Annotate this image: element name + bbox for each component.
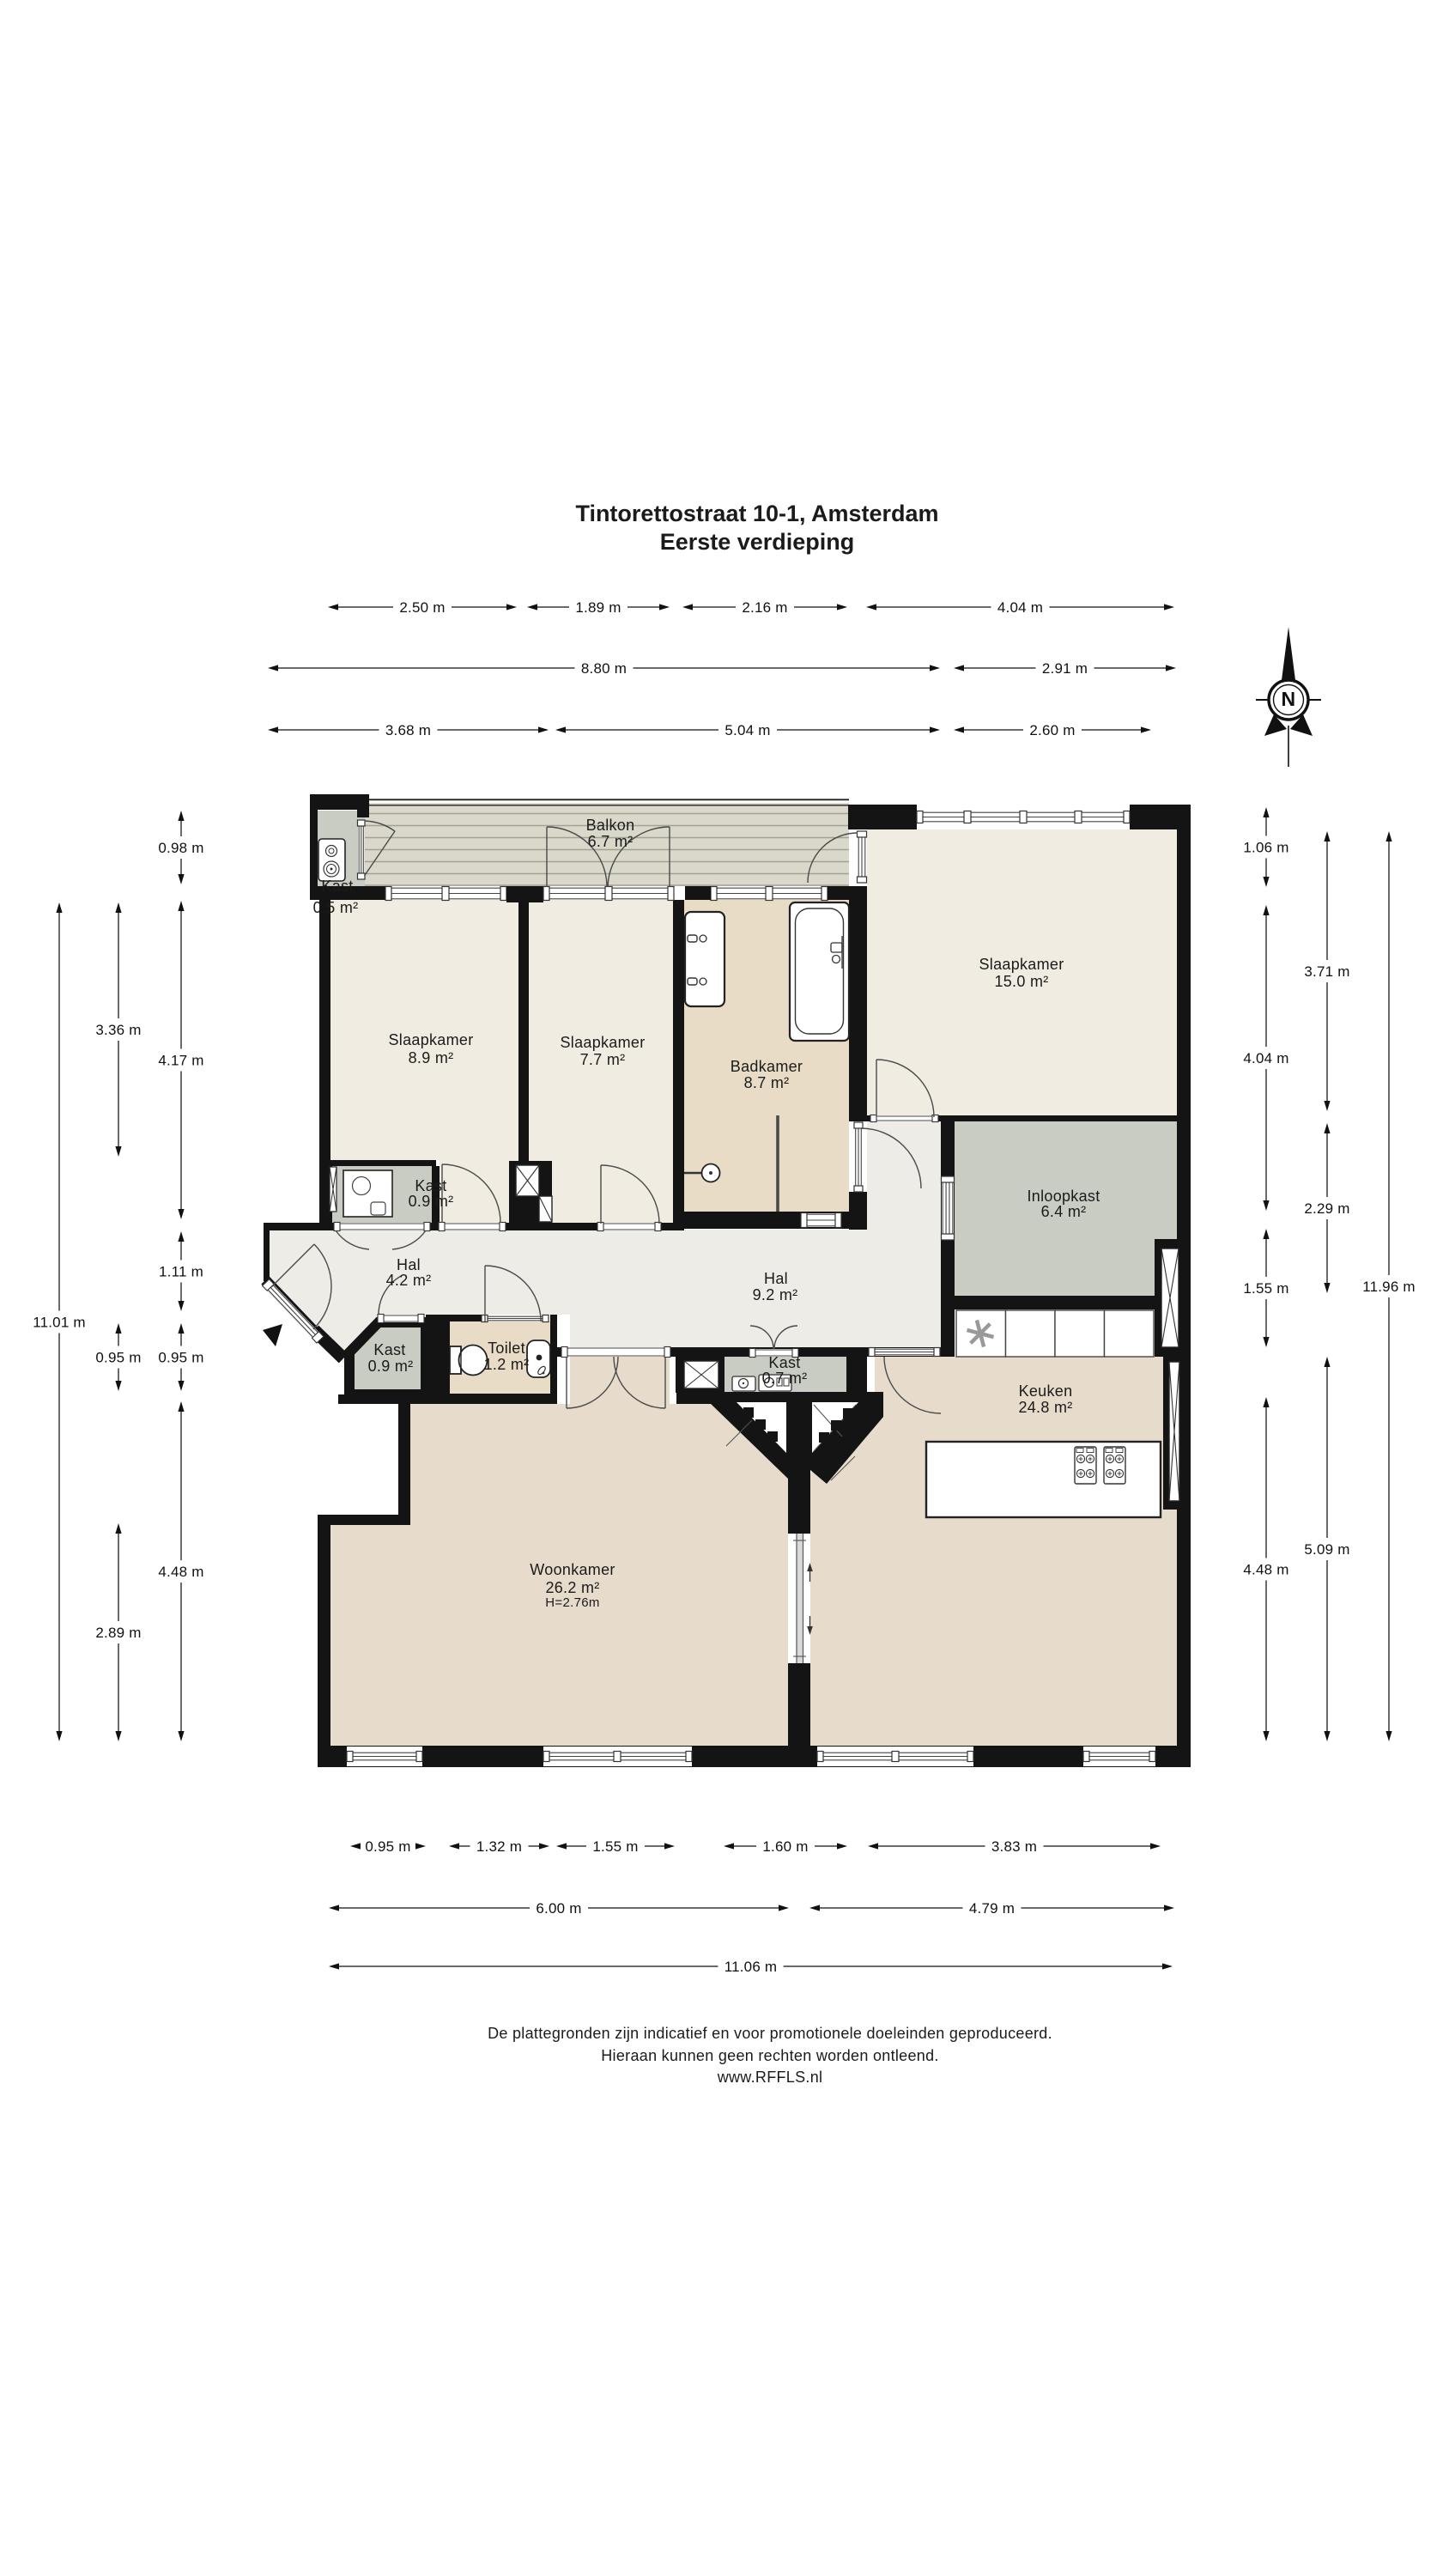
svg-text:www.RFFLS.nl: www.RFFLS.nl	[717, 2069, 823, 2086]
svg-text:0.95 m: 0.95 m	[95, 1350, 141, 1366]
svg-text:11.01 m: 11.01 m	[33, 1315, 86, 1331]
svg-text:6.7 m²: 6.7 m²	[588, 833, 634, 850]
svg-text:2.60 m: 2.60 m	[1029, 722, 1075, 738]
svg-text:3.68 m: 3.68 m	[385, 722, 431, 738]
svg-text:8.9 m²: 8.9 m²	[409, 1049, 454, 1066]
svg-text:2.91 m: 2.91 m	[1042, 660, 1088, 677]
svg-text:1.11 m: 1.11 m	[159, 1264, 203, 1280]
svg-text:11.96 m: 11.96 m	[1362, 1279, 1416, 1295]
svg-text:Inloopkast: Inloopkast	[1027, 1188, 1100, 1205]
svg-text:Eerste verdieping: Eerste verdieping	[660, 529, 855, 555]
svg-text:Kast: Kast	[321, 878, 353, 895]
svg-text:Hieraan kunnen geen rechten wo: Hieraan kunnen geen rechten worden ontle…	[601, 2047, 938, 2064]
svg-text:0.9 m²: 0.9 m²	[368, 1358, 414, 1375]
svg-text:4.48 m: 4.48 m	[1243, 1562, 1288, 1578]
svg-text:H=2.76m: H=2.76m	[545, 1595, 599, 1610]
svg-text:4.04 m: 4.04 m	[997, 599, 1043, 616]
svg-text:5.04 m: 5.04 m	[724, 722, 770, 738]
svg-text:Woonkamer: Woonkamer	[530, 1561, 615, 1578]
svg-text:Hal: Hal	[764, 1270, 788, 1287]
svg-text:Kast: Kast	[373, 1341, 405, 1358]
svg-text:15.0 m²: 15.0 m²	[994, 973, 1048, 990]
svg-text:4.48 m: 4.48 m	[158, 1564, 203, 1580]
svg-text:Slaapkamer: Slaapkamer	[388, 1031, 473, 1048]
svg-text:Slaapkamer: Slaapkamer	[560, 1034, 645, 1051]
svg-text:2.29 m: 2.29 m	[1304, 1200, 1349, 1217]
svg-text:Tintorettostraat 10-1, Amsterd: Tintorettostraat 10-1, Amsterdam	[575, 501, 938, 526]
svg-text:Kast: Kast	[415, 1177, 446, 1194]
svg-text:2.50 m: 2.50 m	[399, 599, 445, 616]
svg-text:8.80 m: 8.80 m	[581, 660, 627, 677]
svg-text:0.7 m²: 0.7 m²	[762, 1370, 808, 1387]
svg-text:De plattegronden zijn indicati: De plattegronden zijn indicatief en voor…	[488, 2025, 1052, 2042]
svg-text:1.2 m²: 1.2 m²	[484, 1356, 530, 1373]
svg-text:1.89 m: 1.89 m	[575, 599, 621, 616]
svg-text:6.4 m²: 6.4 m²	[1041, 1203, 1087, 1220]
svg-text:3.36 m: 3.36 m	[95, 1022, 141, 1038]
svg-text:0.95 m: 0.95 m	[365, 1838, 410, 1855]
svg-text:26.2 m²: 26.2 m²	[545, 1579, 599, 1596]
svg-text:1.60 m: 1.60 m	[762, 1838, 808, 1855]
svg-text:1.55 m: 1.55 m	[1243, 1280, 1288, 1297]
svg-text:4.04 m: 4.04 m	[1243, 1050, 1288, 1066]
svg-text:Toilet: Toilet	[488, 1340, 525, 1357]
svg-text:Slaapkamer: Slaapkamer	[979, 956, 1064, 973]
svg-text:7.7 m²: 7.7 m²	[580, 1051, 626, 1068]
svg-text:Kast: Kast	[768, 1354, 800, 1371]
svg-text:0.9 m²: 0.9 m²	[409, 1193, 454, 1210]
svg-text:24.8 m²: 24.8 m²	[1018, 1399, 1072, 1416]
svg-text:0.5 m²: 0.5 m²	[313, 899, 359, 916]
svg-text:Balkon: Balkon	[586, 817, 635, 834]
svg-text:11.06 m: 11.06 m	[724, 1959, 778, 1975]
svg-text:Keuken: Keuken	[1019, 1382, 1073, 1400]
svg-text:4.17 m: 4.17 m	[158, 1053, 203, 1069]
svg-text:4.2 m²: 4.2 m²	[386, 1272, 432, 1289]
svg-text:1.32 m: 1.32 m	[476, 1838, 522, 1855]
svg-text:N: N	[1282, 688, 1296, 710]
svg-text:2.16 m: 2.16 m	[742, 599, 787, 616]
svg-text:Badkamer: Badkamer	[731, 1058, 803, 1075]
svg-text:Hal: Hal	[397, 1256, 421, 1273]
svg-text:3.83 m: 3.83 m	[991, 1838, 1037, 1855]
svg-text:6.00 m: 6.00 m	[536, 1900, 581, 1917]
svg-text:4.79 m: 4.79 m	[969, 1900, 1015, 1917]
svg-text:2.89 m: 2.89 m	[95, 1625, 141, 1641]
svg-text:1.06 m: 1.06 m	[1243, 840, 1288, 856]
svg-text:9.2 m²: 9.2 m²	[753, 1286, 798, 1303]
svg-text:1.55 m: 1.55 m	[592, 1838, 638, 1855]
svg-text:5.09 m: 5.09 m	[1304, 1541, 1349, 1558]
svg-text:3.71 m: 3.71 m	[1304, 963, 1349, 980]
svg-text:0.95 m: 0.95 m	[158, 1350, 203, 1366]
svg-text:8.7 m²: 8.7 m²	[744, 1074, 790, 1091]
svg-text:0.98 m: 0.98 m	[158, 840, 203, 856]
